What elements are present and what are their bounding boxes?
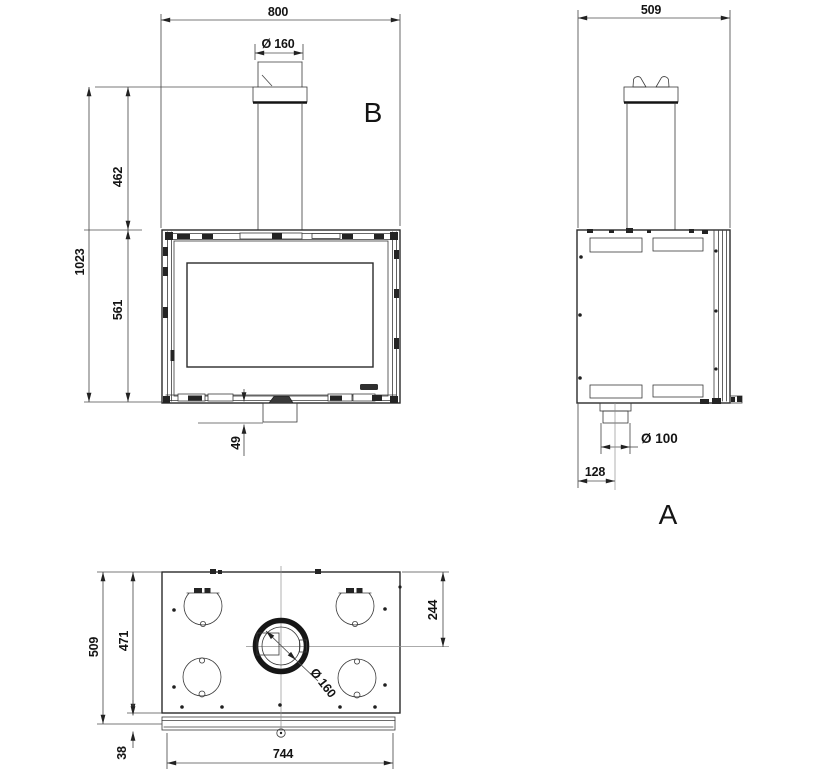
front-base-duct bbox=[263, 403, 297, 422]
top-dim-flue-diameter: Ø 160 bbox=[307, 666, 339, 701]
top-knockout-openings bbox=[183, 585, 376, 698]
front-frame-marks bbox=[163, 247, 399, 361]
side-view: 509 Ø 100 128 A bbox=[577, 3, 742, 530]
side-air-outlet bbox=[600, 403, 631, 423]
side-body bbox=[577, 228, 742, 404]
front-dim-flue-height: 462 bbox=[111, 167, 125, 188]
front-view: 800 Ø 160 1023 462 561 49 B bbox=[73, 5, 400, 456]
side-dimensions: 509 Ø 100 128 bbox=[578, 3, 730, 490]
front-bottom-clips bbox=[163, 394, 398, 403]
front-dim-base-drop: 49 bbox=[229, 436, 243, 450]
top-view: Ø 160 bbox=[87, 566, 449, 769]
front-center-latch bbox=[269, 397, 293, 404]
front-top-clips bbox=[165, 232, 398, 240]
top-dim-depth: 509 bbox=[87, 637, 101, 658]
top-dim-flue-center-offset: 244 bbox=[426, 600, 440, 621]
top-screw-dots bbox=[172, 585, 401, 708]
top-dim-front-width: 744 bbox=[273, 747, 294, 761]
side-dim-depth: 509 bbox=[641, 3, 662, 17]
front-dim-flue-diameter: Ø 160 bbox=[261, 37, 294, 51]
side-dim-outlet-offset: 128 bbox=[585, 465, 606, 479]
top-dim-body-depth: 471 bbox=[117, 631, 131, 652]
front-dim-total-height: 1023 bbox=[73, 248, 87, 275]
side-dim-outlet-diameter: Ø 100 bbox=[641, 431, 678, 446]
technical-drawing-page: 800 Ø 160 1023 462 561 49 B bbox=[0, 0, 821, 777]
top-dim-frame-thickness: 38 bbox=[115, 746, 129, 760]
side-view-label: A bbox=[659, 499, 678, 530]
side-flue-pipe bbox=[624, 77, 678, 230]
front-dim-width: 800 bbox=[268, 5, 289, 19]
front-rating-badge bbox=[360, 384, 378, 390]
top-flue-collar: Ø 160 bbox=[256, 621, 339, 701]
front-dim-body-height: 561 bbox=[111, 300, 125, 321]
front-view-label: B bbox=[364, 97, 383, 128]
front-body bbox=[162, 230, 400, 403]
front-glass-window bbox=[187, 263, 373, 367]
fireplace-dimension-drawing: 800 Ø 160 1023 462 561 49 B bbox=[0, 0, 821, 777]
front-flue-pipe bbox=[253, 62, 307, 230]
